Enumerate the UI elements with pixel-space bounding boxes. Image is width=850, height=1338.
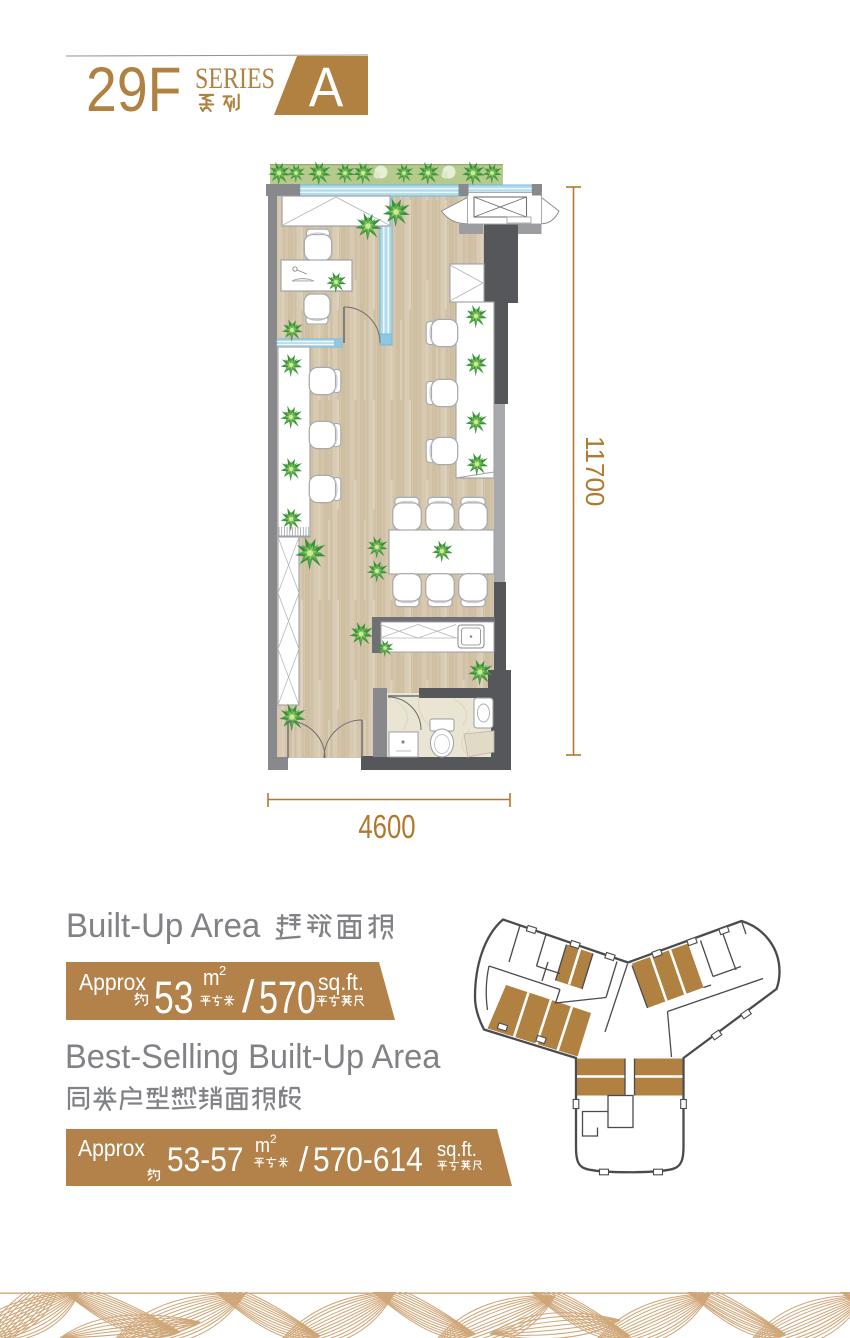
svg-text:29F: 29F	[86, 54, 182, 125]
svg-text:/: /	[299, 1141, 309, 1179]
svg-text:Best-Selling Built-Up Area: Best-Selling Built-Up Area	[65, 1038, 441, 1076]
svg-text:A: A	[309, 56, 343, 118]
svg-text:4600: 4600	[358, 809, 415, 845]
svg-text:SERIES: SERIES	[195, 61, 275, 94]
svg-text:m: m	[203, 966, 219, 990]
svg-text:570-614: 570-614	[313, 1140, 423, 1178]
svg-text:/: /	[242, 971, 255, 1022]
svg-text:2: 2	[219, 963, 226, 978]
svg-text:Built-Up Area: Built-Up Area	[66, 908, 261, 946]
svg-text:m: m	[255, 1135, 270, 1157]
svg-text:570: 570	[259, 974, 316, 1024]
svg-text:2: 2	[270, 1132, 277, 1146]
svg-text:Approx: Approx	[78, 1135, 145, 1161]
svg-text:11700: 11700	[580, 436, 610, 506]
svg-text:53-57: 53-57	[167, 1140, 244, 1178]
svg-text:53: 53	[154, 972, 194, 1023]
svg-text:sq.ft.: sq.ft.	[318, 969, 364, 995]
svg-text:Approx: Approx	[79, 969, 146, 995]
